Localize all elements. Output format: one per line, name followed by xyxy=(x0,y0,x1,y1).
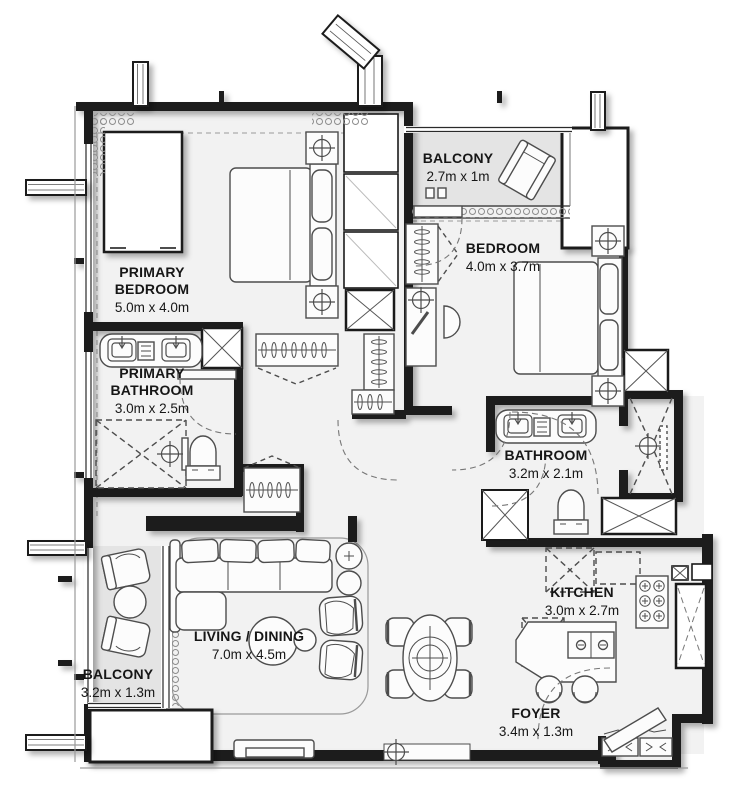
room-name: LIVING / DINING xyxy=(194,628,304,645)
room-label-foyer: FOYER 3.4m x 1.3m xyxy=(499,705,573,740)
armchair xyxy=(319,640,364,681)
bar-stool xyxy=(572,676,598,703)
room-label-kitchen: KITCHEN 3.0m x 2.7m xyxy=(545,584,619,619)
room-label-primary-bathroom: PRIMARY BATHROOM 3.0m x 2.5m xyxy=(96,365,208,417)
floor-plan: PRIMARY BEDROOM 5.0m x 4.0m BALCONY 2.7m… xyxy=(0,0,752,802)
primary-wardrobe-unit xyxy=(104,132,182,252)
room-dims: 2.7m x 1m xyxy=(423,169,494,185)
room-label-balcony-top: BALCONY 2.7m x 1m xyxy=(423,150,494,185)
room-name: BALCONY xyxy=(81,666,155,683)
room-label-bedroom: BEDROOM 4.0m x 3.7m xyxy=(466,240,541,275)
side-table xyxy=(337,571,361,595)
room-dims: 3.0m x 2.7m xyxy=(545,603,619,619)
fridge-icon xyxy=(676,584,706,668)
sink-icon xyxy=(162,336,190,361)
room-name: BATHROOM xyxy=(505,447,588,464)
cooktop-icon xyxy=(636,576,668,628)
primary-bed xyxy=(230,164,336,286)
room-dims: 5.0m x 4.0m xyxy=(96,300,208,316)
sink-icon xyxy=(504,412,532,437)
duct-icon xyxy=(672,566,688,580)
room-dims: 3.0m x 2.5m xyxy=(96,401,208,417)
duct-icon xyxy=(346,290,394,330)
fin-icon xyxy=(28,541,86,555)
column-block-bottom-left xyxy=(90,710,212,762)
room-label-primary-bedroom: PRIMARY BEDROOM 5.0m x 4.0m xyxy=(96,264,208,316)
duct-icon xyxy=(624,350,668,392)
fin-icon xyxy=(26,180,86,195)
cabinet-column xyxy=(344,114,398,288)
fin-icon xyxy=(26,735,86,750)
room-name: PRIMARY BATHROOM xyxy=(96,365,208,399)
room-label-bathroom: BATHROOM 3.2m x 2.1m xyxy=(505,447,588,482)
room-name: FOYER xyxy=(499,705,573,722)
duct-icon xyxy=(602,498,676,534)
planter xyxy=(438,188,446,198)
fin-icon xyxy=(591,92,605,130)
fin-icon xyxy=(322,15,379,68)
sink-icon xyxy=(108,336,136,361)
duct-icon xyxy=(202,328,242,368)
room-dims: 3.4m x 1.3m xyxy=(499,724,573,740)
dining-table xyxy=(403,615,457,701)
balcony-table xyxy=(114,586,146,618)
room-dims: 3.2m x 2.1m xyxy=(505,466,588,482)
sink-icon xyxy=(558,412,586,437)
tv-console xyxy=(234,740,314,758)
cabinet-box xyxy=(692,564,712,580)
bar-stool xyxy=(536,676,562,703)
room-dims: 7.0m x 4.5m xyxy=(194,647,304,663)
fin-icon xyxy=(133,62,148,106)
shoe-rack xyxy=(352,390,394,414)
room-name: BALCONY xyxy=(423,150,494,167)
closet-rack xyxy=(364,334,394,390)
planter xyxy=(426,188,434,198)
armchair xyxy=(319,596,364,637)
room-name: BEDROOM xyxy=(466,240,541,257)
room-name: KITCHEN xyxy=(545,584,619,601)
room-label-balcony-bottom: BALCONY 3.2m x 1.3m xyxy=(81,666,155,701)
bedroom-bed xyxy=(514,258,622,378)
room-dims: 4.0m x 3.7m xyxy=(466,259,541,275)
side-table xyxy=(336,543,362,569)
washer-icon xyxy=(482,490,528,540)
room-dims: 3.2m x 1.3m xyxy=(81,685,155,701)
room-label-living-dining: LIVING / DINING 7.0m x 4.5m xyxy=(194,628,304,663)
door-leaf xyxy=(414,206,462,217)
room-name: PRIMARY BEDROOM xyxy=(96,264,208,298)
